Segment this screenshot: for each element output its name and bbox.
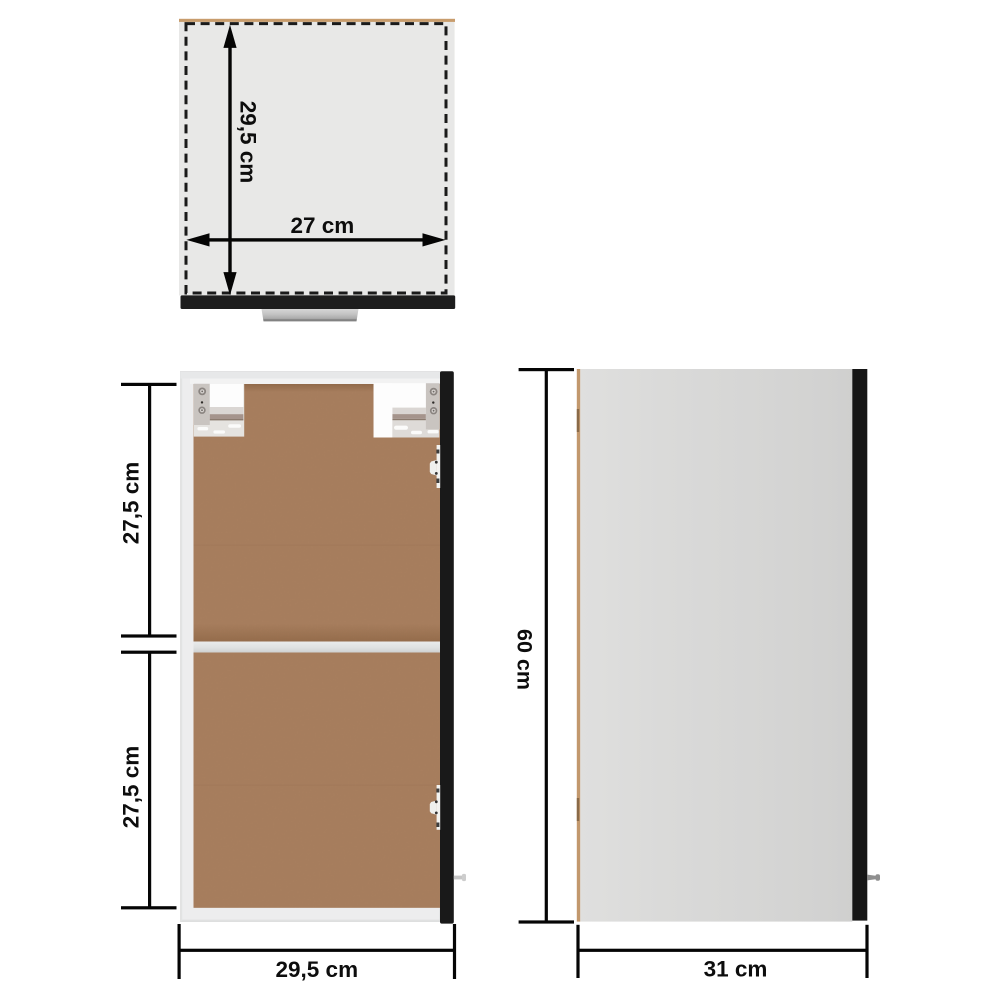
svg-text:29,5 cm: 29,5 cm <box>276 957 359 982</box>
svg-text:27,5 cm: 27,5 cm <box>119 746 144 829</box>
svg-text:27,5 cm: 27,5 cm <box>119 462 144 545</box>
svg-text:27 cm: 27 cm <box>290 213 354 238</box>
svg-text:31 cm: 31 cm <box>704 957 768 982</box>
svg-text:29,5 cm: 29,5 cm <box>235 101 260 184</box>
svg-text:60 cm: 60 cm <box>513 629 537 690</box>
